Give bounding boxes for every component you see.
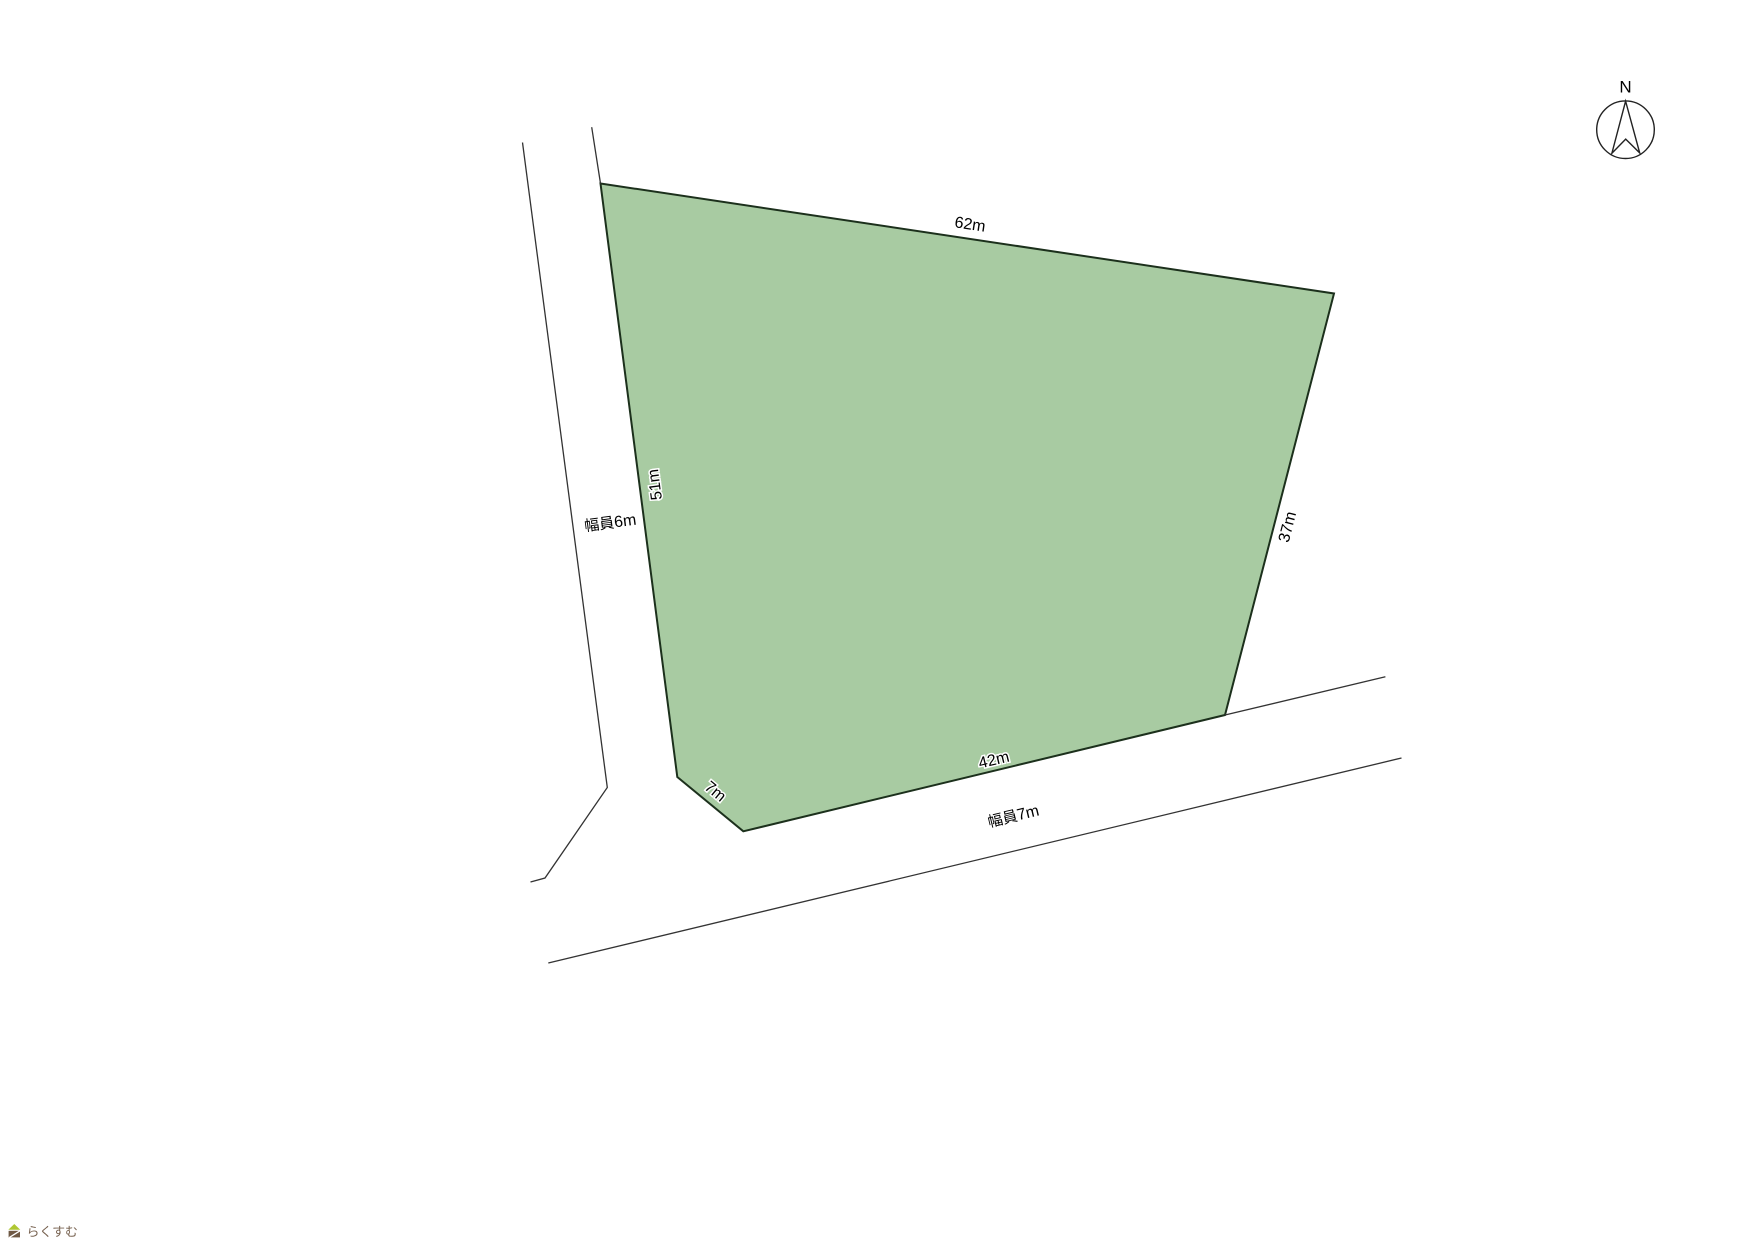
svg-text:6m: 6m — [613, 512, 637, 532]
svg-text:N: N — [1619, 78, 1631, 97]
